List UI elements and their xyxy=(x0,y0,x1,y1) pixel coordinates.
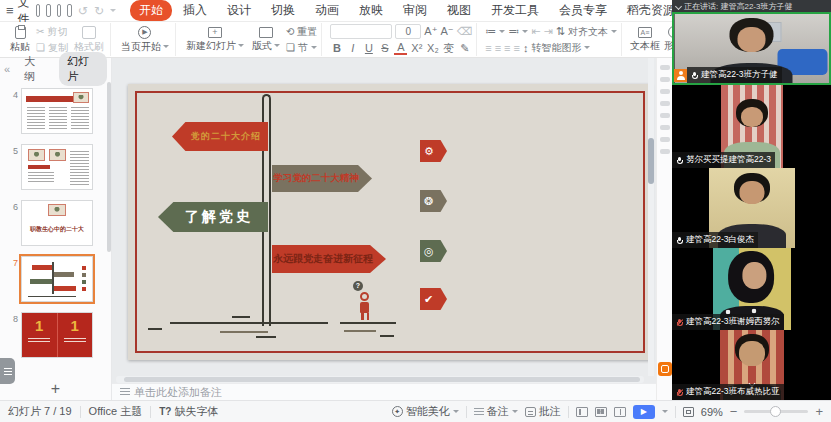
comments-button[interactable]: 批注 xyxy=(525,404,561,419)
font-group: 0 A⁺ A⁻ ⌫ B I U S A X² X₂ 变 ✎ xyxy=(326,23,477,56)
notes-icon xyxy=(120,388,130,396)
play-from-current-button[interactable]: ▶ 当页开始 xyxy=(119,26,171,54)
tab-slideshow[interactable]: 放映 xyxy=(350,0,392,21)
slide-thumb-row-5[interactable]: 5 xyxy=(6,144,103,190)
caret-icon xyxy=(453,410,459,413)
tab-view[interactable]: 视图 xyxy=(438,0,480,21)
wps-presentation-window: ≡ 文件 ↺ ↻ 开始 插入 设计 切换 动画 放映 审阅 视图 开发工具 会员… xyxy=(0,0,831,422)
tab-transition[interactable]: 切换 xyxy=(262,0,304,21)
slide-thumb-row-6[interactable]: 6 职教生心中的二十大 xyxy=(6,200,103,246)
floating-list-widget[interactable] xyxy=(0,358,15,384)
slide-thumb-row-4[interactable]: 4 xyxy=(6,88,103,134)
justify-button[interactable]: ≡ xyxy=(514,42,520,54)
sign-party-congress-intro[interactable]: 党的二十大介绍 xyxy=(172,122,268,151)
slide-5-thumbnail[interactable] xyxy=(21,144,93,190)
tab-home[interactable]: 开始 xyxy=(130,0,172,21)
numbering-button[interactable]: ≕ xyxy=(508,25,519,38)
video-participant-5[interactable]: 建管高22-3班布威热比亚 xyxy=(672,330,831,400)
hamburger-icon: ≡ xyxy=(6,3,14,18)
slide-6-title: 职教生心中的二十大 xyxy=(22,225,92,234)
align-left-button[interactable]: ≡ xyxy=(485,42,491,54)
slide-8-thumbnail[interactable]: 1 1 xyxy=(21,312,93,358)
cut-button[interactable]: ✂ 剪切 xyxy=(36,25,68,39)
question-bubble: ? xyxy=(353,281,363,291)
zoom-minus-button[interactable]: − xyxy=(730,404,738,419)
zoom-slider-thumb[interactable] xyxy=(770,406,781,417)
canvas-vertical-scrollbar[interactable] xyxy=(648,58,654,376)
font-size-combobox[interactable]: 0 xyxy=(395,24,421,39)
ground-line xyxy=(148,328,162,330)
figure-head xyxy=(360,292,369,301)
new-slide-icon: + xyxy=(208,27,222,38)
clear-format-button[interactable]: ⌫ xyxy=(457,25,473,38)
participant-5-face xyxy=(739,341,765,366)
missing-font-button[interactable]: T? 缺失字体 xyxy=(159,404,218,419)
slide-sorter-view-button[interactable] xyxy=(595,407,607,417)
paste-icon xyxy=(15,26,26,39)
font-name-combobox[interactable] xyxy=(330,24,392,39)
mic-muted-icon xyxy=(677,389,682,396)
tab-member[interactable]: 会员专享 xyxy=(550,0,616,21)
canvas-horizontal-scrollbar[interactable] xyxy=(116,376,644,383)
format-painter-button[interactable]: 格式刷 xyxy=(72,26,106,54)
ground-line xyxy=(340,322,396,324)
theme-name[interactable]: Office 主题 xyxy=(89,404,143,419)
participant-4-face xyxy=(742,262,766,289)
participant-name: 建管高22-3班方子健 xyxy=(701,69,778,81)
play-circle-icon: ▶ xyxy=(138,26,151,39)
tab-devtools[interactable]: 开发工具 xyxy=(482,0,548,21)
mic-on-icon xyxy=(692,72,697,79)
notes-bar[interactable]: 单击此处添加备注 xyxy=(112,383,656,400)
sign-party-history[interactable]: 了解党史 xyxy=(158,202,268,232)
notes-icon xyxy=(474,408,484,416)
increase-indent-button[interactable]: ⇥ xyxy=(543,25,552,38)
strikethrough-button[interactable]: S xyxy=(378,42,391,54)
grow-font-button[interactable]: A⁺ xyxy=(424,25,437,38)
chevron-down-icon xyxy=(675,2,682,9)
tab-slides[interactable]: 幻灯片 xyxy=(59,52,107,86)
tab-animation[interactable]: 动画 xyxy=(306,0,348,21)
align-right-button[interactable]: ≡ xyxy=(504,42,510,54)
check-icon: ✔ xyxy=(424,293,433,306)
sidebar-scrollbar[interactable] xyxy=(107,82,111,252)
figure-body xyxy=(360,302,369,313)
undo-icon[interactable]: ↺ xyxy=(78,4,88,18)
print-icon[interactable] xyxy=(57,4,62,17)
video-participant-3[interactable]: 建管高22-3白俊杰 xyxy=(672,168,831,248)
new-slide-button[interactable]: + 新建幻灯片 xyxy=(184,27,246,53)
zoom-slider[interactable] xyxy=(744,410,808,413)
slide-counter: 幻灯片 7 / 19 xyxy=(8,404,72,419)
align-text-button[interactable]: 对齐文本 xyxy=(568,25,608,39)
beautify-icon: ✦ xyxy=(392,406,403,417)
slide-4-thumbnail[interactable] xyxy=(21,88,93,134)
play-group: ▶ 当页开始 xyxy=(115,23,176,56)
collapse-panel-icon[interactable]: « xyxy=(4,63,10,75)
tab-outline[interactable]: 大纲 xyxy=(16,52,53,86)
participant-3-face xyxy=(739,181,764,204)
tab-insert[interactable]: 插入 xyxy=(174,0,216,21)
mic-on-icon xyxy=(677,157,682,164)
video-participant-2[interactable]: 努尔买买提建管高22-3 xyxy=(672,85,831,168)
meeting-panel: 正在讲话: 建管高22-3班方子健 建管高22-3班方子健 xyxy=(672,0,831,400)
line-spacing-button[interactable]: ↕ xyxy=(523,42,529,54)
zoom-plus-button[interactable]: + xyxy=(815,404,823,419)
reset-button[interactable]: ⟲ 重置 xyxy=(286,25,317,39)
list-icon xyxy=(4,368,12,375)
smart-graphic-button[interactable]: 转智能图形 xyxy=(531,41,581,55)
ribbon-tabs: 开始 插入 设计 切换 动画 放映 审阅 视图 开发工具 会员专享 稻壳资源 xyxy=(130,0,684,21)
figure-legs xyxy=(361,313,369,320)
ground-line xyxy=(344,330,376,332)
notes-toggle-button[interactable]: 备注 xyxy=(474,404,518,419)
add-slide-button[interactable]: + xyxy=(0,380,111,398)
section-button[interactable]: ❏ 节 xyxy=(286,41,317,55)
tab-review[interactable]: 审阅 xyxy=(394,0,436,21)
subscript-button[interactable]: X₂ xyxy=(426,42,439,54)
zoom-percent[interactable]: 69% xyxy=(701,406,723,418)
decrease-indent-button[interactable]: ⇤ xyxy=(531,25,540,38)
ground-line xyxy=(170,322,328,324)
participant-name: 建管高22-3班布威热比亚 xyxy=(686,386,780,398)
promo-badge-icon[interactable] xyxy=(658,362,672,376)
paste-button[interactable]: 粘贴 xyxy=(8,26,32,54)
textbox-button[interactable]: A≡ 文本框 xyxy=(630,27,660,53)
participant-name: 建管高22-3班谢姆西努尔 xyxy=(686,316,780,328)
redo-icon[interactable]: ↻ xyxy=(94,4,104,18)
video-participant-4[interactable]: 建管高22-3班谢姆西努尔 xyxy=(672,248,831,330)
align-center-button[interactable]: ≡ xyxy=(495,42,501,54)
format-painter-icon xyxy=(82,26,96,39)
play-options-caret-icon[interactable] xyxy=(662,410,668,413)
slide-thumb-row-7[interactable]: 7 xyxy=(6,256,103,302)
print-preview-icon[interactable] xyxy=(67,4,72,17)
participant-1-face xyxy=(738,27,766,52)
history-caret-icon[interactable] xyxy=(110,9,116,12)
underline-button[interactable]: U xyxy=(362,42,375,54)
layout-icon xyxy=(259,27,273,38)
video-participant-1[interactable]: 建管高22-3班方子健 xyxy=(672,12,831,85)
participant-name: 建管高22-3白俊杰 xyxy=(686,234,754,246)
smart-beautify-button[interactable]: ✦ 智能美化 xyxy=(392,404,459,419)
layout-button[interactable]: 版式 xyxy=(250,27,282,53)
mic-on-icon xyxy=(677,237,682,244)
slide-thumb-row-8[interactable]: 8 1 1 xyxy=(6,312,103,358)
italic-button[interactable]: I xyxy=(346,42,359,54)
tab-design[interactable]: 设计 xyxy=(218,0,260,21)
text-direction-button[interactable]: ⇅ xyxy=(556,25,565,38)
participant-name: 努尔买买提建管高22-3 xyxy=(686,154,771,166)
ground-line xyxy=(232,316,250,318)
ground-line xyxy=(256,336,276,338)
notes-placeholder: 单击此处添加备注 xyxy=(134,385,222,400)
missing-font-icon: T? xyxy=(159,406,171,417)
slide-7-thumbnail-selected[interactable] xyxy=(21,256,93,302)
change-case-button[interactable]: 变 xyxy=(442,41,455,56)
highlight-pen-button[interactable]: ✎ xyxy=(458,42,471,55)
caret-icon xyxy=(512,410,518,413)
bold-button[interactable]: B xyxy=(330,42,343,54)
slide-6-thumbnail[interactable]: 职教生心中的二十大 xyxy=(21,200,93,246)
ground-line xyxy=(380,335,394,337)
normal-view-button[interactable] xyxy=(576,407,588,417)
aperture-icon: ❂ xyxy=(424,195,433,208)
save-icon[interactable] xyxy=(36,4,41,17)
task-pane-sliver xyxy=(656,58,672,400)
participant-2-face xyxy=(741,107,763,127)
comment-icon xyxy=(525,407,536,417)
slide-canvas: 党的二十大介绍 学习党的二十大精神 了解党史 永远跟党走奋进新征程 ⚙ ❂ ◎ … xyxy=(112,58,656,400)
bullets-button[interactable]: ≔ xyxy=(485,25,496,38)
slideshow-play-button[interactable]: ▶ xyxy=(633,405,655,419)
target-icon: ◎ xyxy=(424,245,434,258)
ground-line xyxy=(220,331,268,333)
shrink-font-button[interactable]: A⁻ xyxy=(441,25,454,38)
sign-follow-party[interactable]: 永远跟党走奋进新征程 xyxy=(272,245,386,273)
reading-view-button[interactable] xyxy=(614,407,626,417)
current-slide[interactable]: 党的二十大介绍 学习党的二十大精神 了解党史 永远跟党走奋进新征程 ⚙ ❂ ◎ … xyxy=(128,84,652,360)
speaking-banner[interactable]: 正在讲话: 建管高22-3班方子健 xyxy=(672,0,831,12)
slide-panel: « 大纲 幻灯片 4 5 xyxy=(0,58,112,400)
walking-figure[interactable]: ? xyxy=(360,292,369,320)
textbox-icon: A≡ xyxy=(638,27,652,38)
font-color-button[interactable]: A xyxy=(394,41,407,55)
gear-icon: ⚙ xyxy=(424,145,434,158)
save-as-icon[interactable] xyxy=(46,4,51,17)
status-bar: 幻灯片 7 / 19 Office 主题 T? 缺失字体 ✦ 智能美化 备注 批… xyxy=(0,400,831,422)
avatar-icon xyxy=(674,69,687,82)
slides-group: + 新建幻灯片 版式 ⟲ 重置 ❏ 节 xyxy=(180,23,322,56)
paragraph-group: ≔ ≕ ⇤ ⇥ ⇅ 对齐文本 ≡ ≡ ≡ ≡ ↕ 转智能图形 xyxy=(481,23,622,56)
thumbnail-list: 4 5 6 xyxy=(0,82,105,374)
sign-study-spirit[interactable]: 学习党的二十大精神 xyxy=(272,165,372,192)
superscript-button[interactable]: X² xyxy=(410,42,423,54)
fit-to-window-icon[interactable] xyxy=(683,407,694,417)
mic-muted-icon xyxy=(677,319,682,326)
